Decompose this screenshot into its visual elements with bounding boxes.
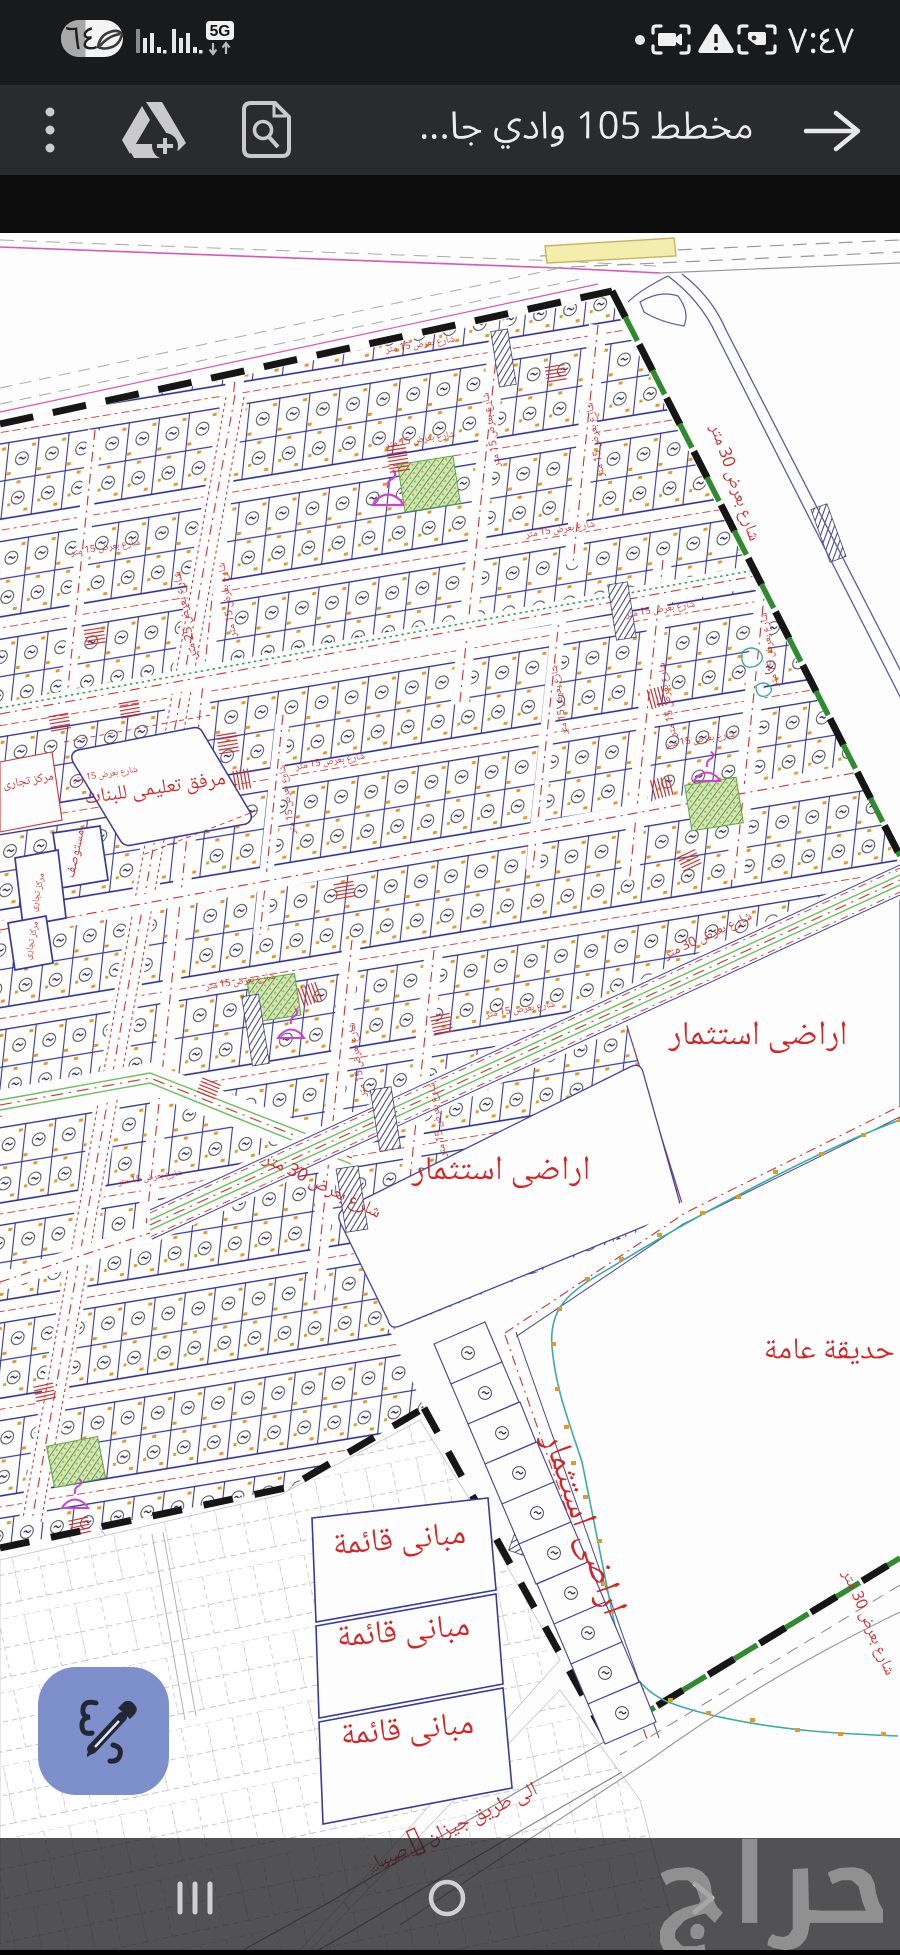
svg-text:5G: 5G	[210, 23, 231, 40]
